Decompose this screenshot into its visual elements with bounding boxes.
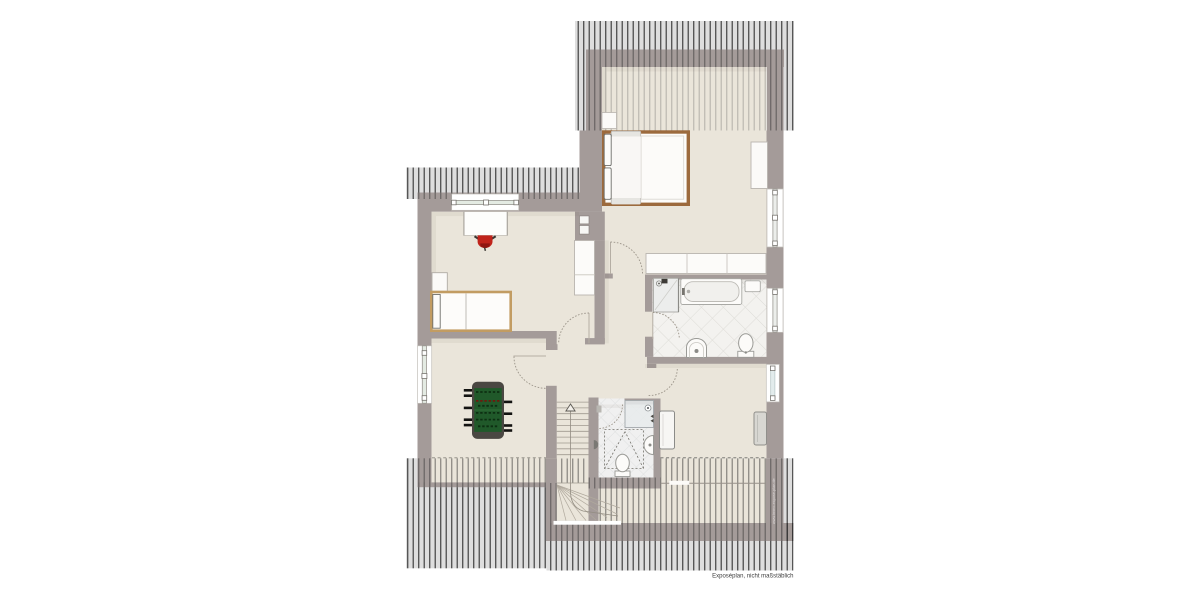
svg-text:Exposéplan, nicht maßstäblich: Exposéplan, nicht maßstäblich: [712, 574, 793, 580]
svg-text:www.immo-expose-plan.de: www.immo-expose-plan.de: [772, 478, 776, 524]
